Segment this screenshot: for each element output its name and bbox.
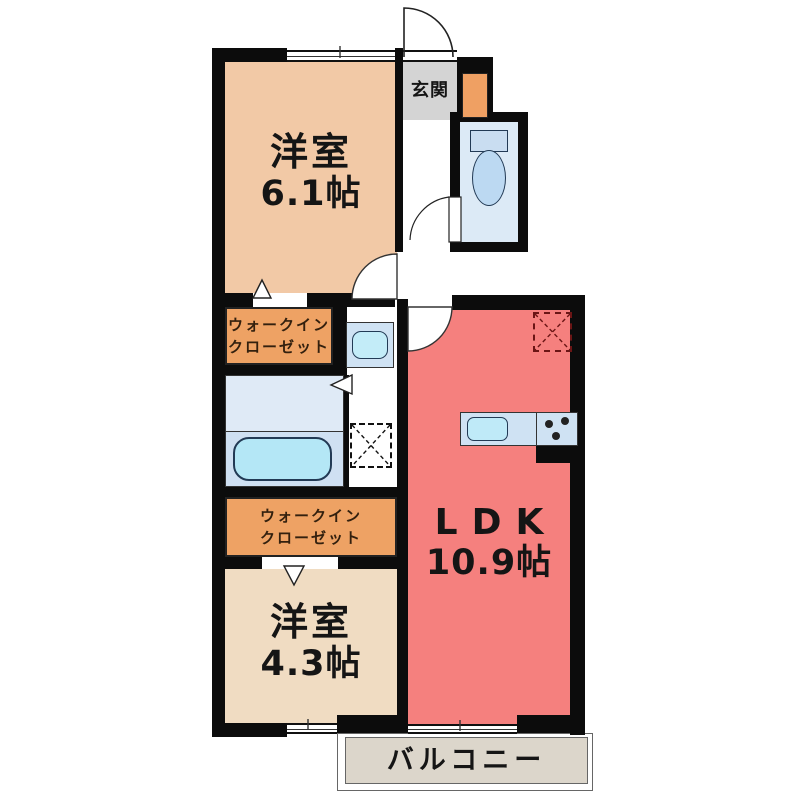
bedroom2-name: 洋室 [270,601,352,645]
sliding-window [408,724,517,734]
wall [212,557,262,569]
ldk-label: LDK 10.9帖 [408,485,570,600]
toilet-icon [470,130,508,152]
closet2-line1: ウォークイン [260,505,362,528]
wall [518,112,528,252]
closet1-line2: クローゼット [228,336,330,359]
closet1-line1: ウォークイン [228,314,330,337]
wall [212,48,287,62]
wall [536,446,585,463]
bedroom1-size: 6.1帖 [260,174,361,214]
ldk-size: 10.9帖 [426,543,552,583]
wall [450,122,460,197]
wall [212,365,347,375]
floor-plan: 玄関 洋室 6.1帖 ウォークイン クローゼット ウォークイン クローゼット L… [0,0,800,800]
closet1-label: ウォークイン クローゼット [225,307,333,365]
bedroom1-label: 洋室 6.1帖 [225,115,397,230]
wall [212,723,287,737]
bathtub-icon [233,437,332,481]
wall [452,295,585,310]
toilet-bowl-icon [472,150,506,206]
balcony-label-text: バルコニー [387,745,546,776]
sink-icon [467,417,508,441]
wall [450,242,528,252]
wall [333,307,347,365]
washing-machine-space-icon [350,423,392,468]
shoe-cabinet [462,73,488,118]
window [287,50,395,62]
balcony-label: バルコニー [345,737,588,784]
washbasin-icon [352,331,388,359]
wall [212,293,253,307]
bedroom1-name: 洋室 [270,131,352,175]
toilet-door-arc [410,197,449,240]
wall [307,293,395,307]
bedroom2-size: 4.3帖 [260,644,361,684]
wall [570,295,585,735]
closet2-line2: クローゼット [260,527,362,550]
refrigerator-space-icon [533,312,572,352]
wall [344,375,349,487]
wall [212,487,408,497]
bedroom2-label: 洋室 4.3帖 [225,585,397,700]
ldk-name: LDK [421,502,558,543]
wall [212,48,225,737]
wall [397,299,408,727]
entrance-label-text: 玄関 [411,81,449,102]
counter-divider [536,412,537,446]
window [287,723,337,734]
closet2-label: ウォークイン クローゼット [225,497,397,557]
entrance-label: 玄関 [403,62,457,120]
bathroom-dressing-area [226,376,343,431]
entrance-doorway [403,50,457,62]
